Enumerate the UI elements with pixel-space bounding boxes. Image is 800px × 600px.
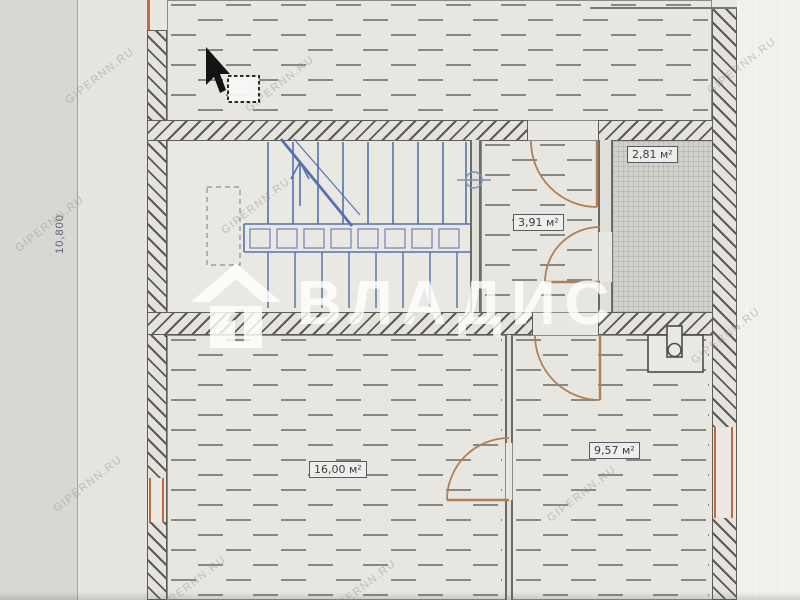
selection-marquee-icon (228, 76, 259, 102)
mouse-cursor-icon (206, 47, 230, 93)
cursor-layer (0, 0, 800, 600)
floorplan-photo: 2,81 м² 3,91 м² 16,00 м² 9,57 м² 10,800 … (0, 0, 800, 600)
